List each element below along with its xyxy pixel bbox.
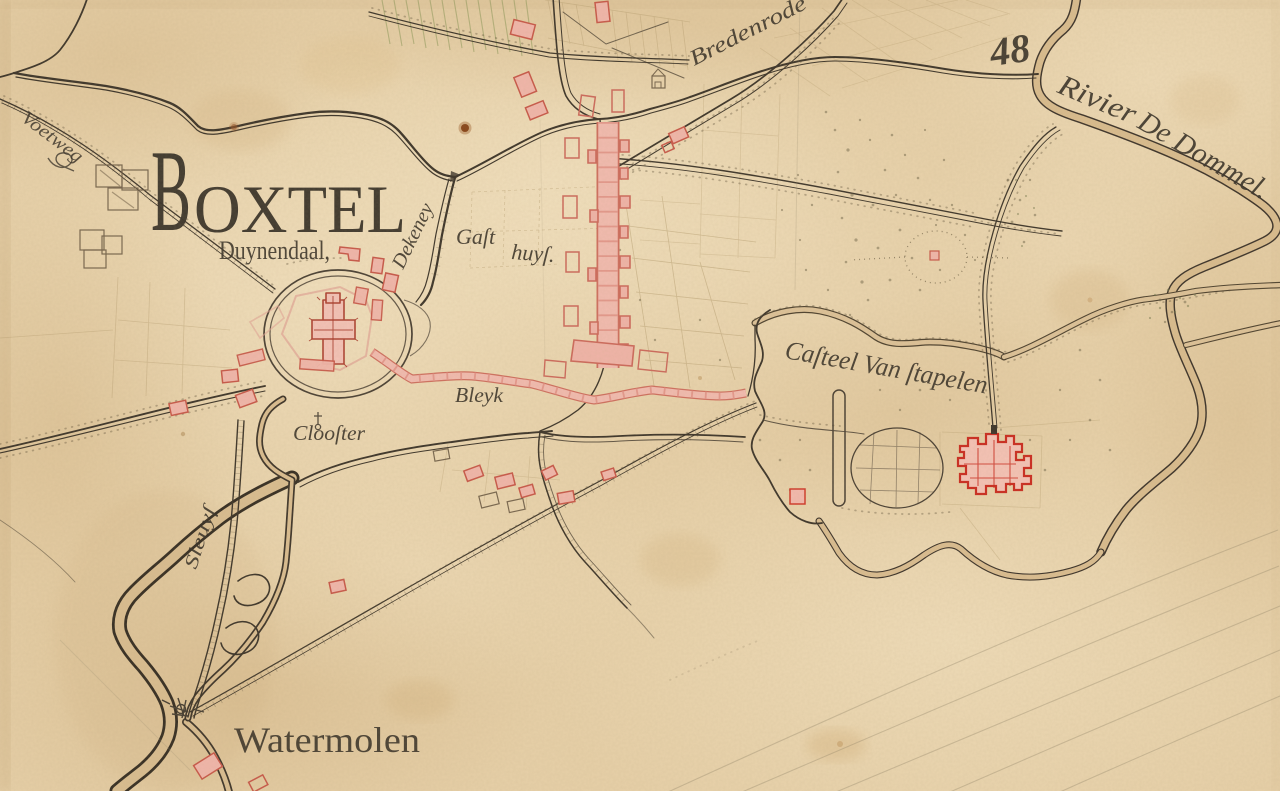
svg-text:48: 48 <box>986 25 1033 75</box>
svg-text:huyſ.: huyſ. <box>511 239 556 267</box>
svg-text:B: B <box>151 127 191 256</box>
svg-text:Duynendaal,: Duynendaal, <box>219 236 330 265</box>
svg-text:Gaſt: Gaſt <box>456 224 496 249</box>
svg-text:Bleyk: Bleyk <box>455 383 504 407</box>
svg-text:Watermolen: Watermolen <box>234 720 420 760</box>
svg-text:Clooſter: Clooſter <box>293 421 366 445</box>
